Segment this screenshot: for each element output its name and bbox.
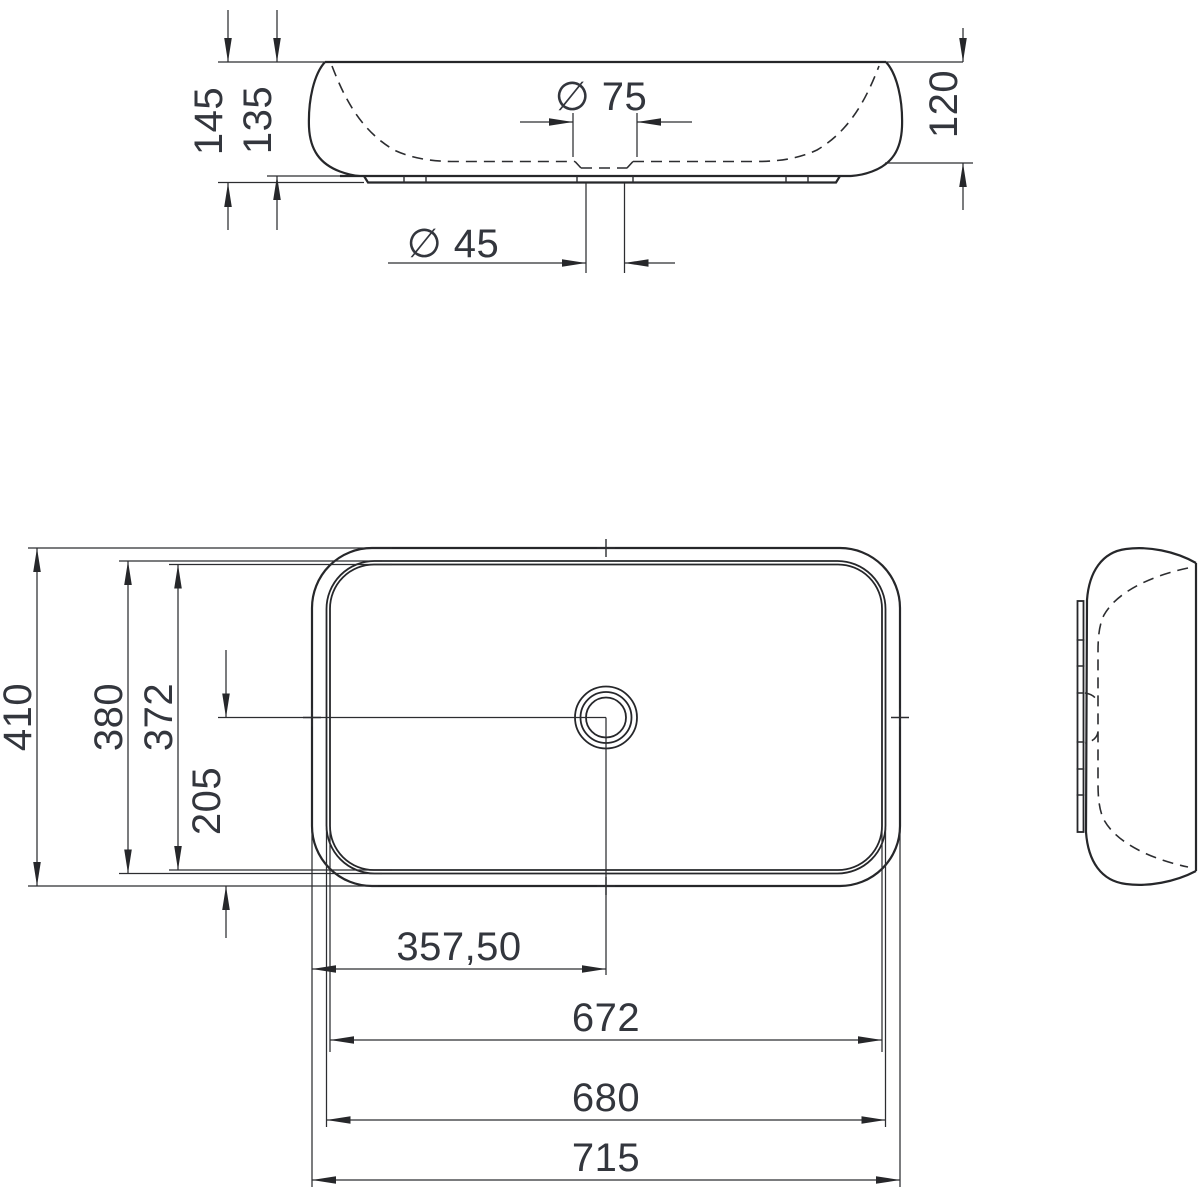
dim-drain-top-label: ∅ 75 <box>555 75 647 119</box>
front-view: 145 135 120 ∅ 75 ∅ 45 <box>187 10 973 273</box>
front-arrowheads <box>224 38 967 267</box>
dim-depth-inner-label: 372 <box>137 683 181 751</box>
dim-drain-center-label: 357,50 <box>396 925 521 969</box>
base-plate-side <box>1078 601 1084 832</box>
plan-arrowheads <box>33 548 900 1184</box>
side-view <box>1077 548 1197 885</box>
dim-width-inner-label: 672 <box>572 996 640 1040</box>
dim-total-height-label: 145 <box>187 87 231 155</box>
dim-body-height-label: 135 <box>236 86 280 154</box>
front-dimension-lines <box>218 10 973 273</box>
plan-view: 410 380 372 205 357,50 672 680 715 <box>0 539 909 1187</box>
washbasin-technical-drawing: 145 135 120 ∅ 75 ∅ 45 410 380 372 205 35… <box>0 0 1200 1200</box>
dim-width-outer-label: 715 <box>572 1136 640 1180</box>
technical-drawing-page: 145 135 120 ∅ 75 ∅ 45 410 380 372 205 35… <box>0 0 1200 1200</box>
basin-side-outline <box>1086 548 1196 885</box>
plan-dimension-lines <box>28 548 900 1187</box>
dim-depth-rim-label: 380 <box>87 683 131 751</box>
dim-bowl-depth-label: 120 <box>922 70 966 138</box>
dim-width-rim-label: 680 <box>572 1076 640 1120</box>
dim-drain-waste-label: ∅ 45 <box>407 222 499 266</box>
dim-depth-outer-label: 410 <box>0 683 40 751</box>
dim-center-offset-label: 205 <box>185 767 229 835</box>
basin-side-inner-dashed <box>1085 568 1188 867</box>
